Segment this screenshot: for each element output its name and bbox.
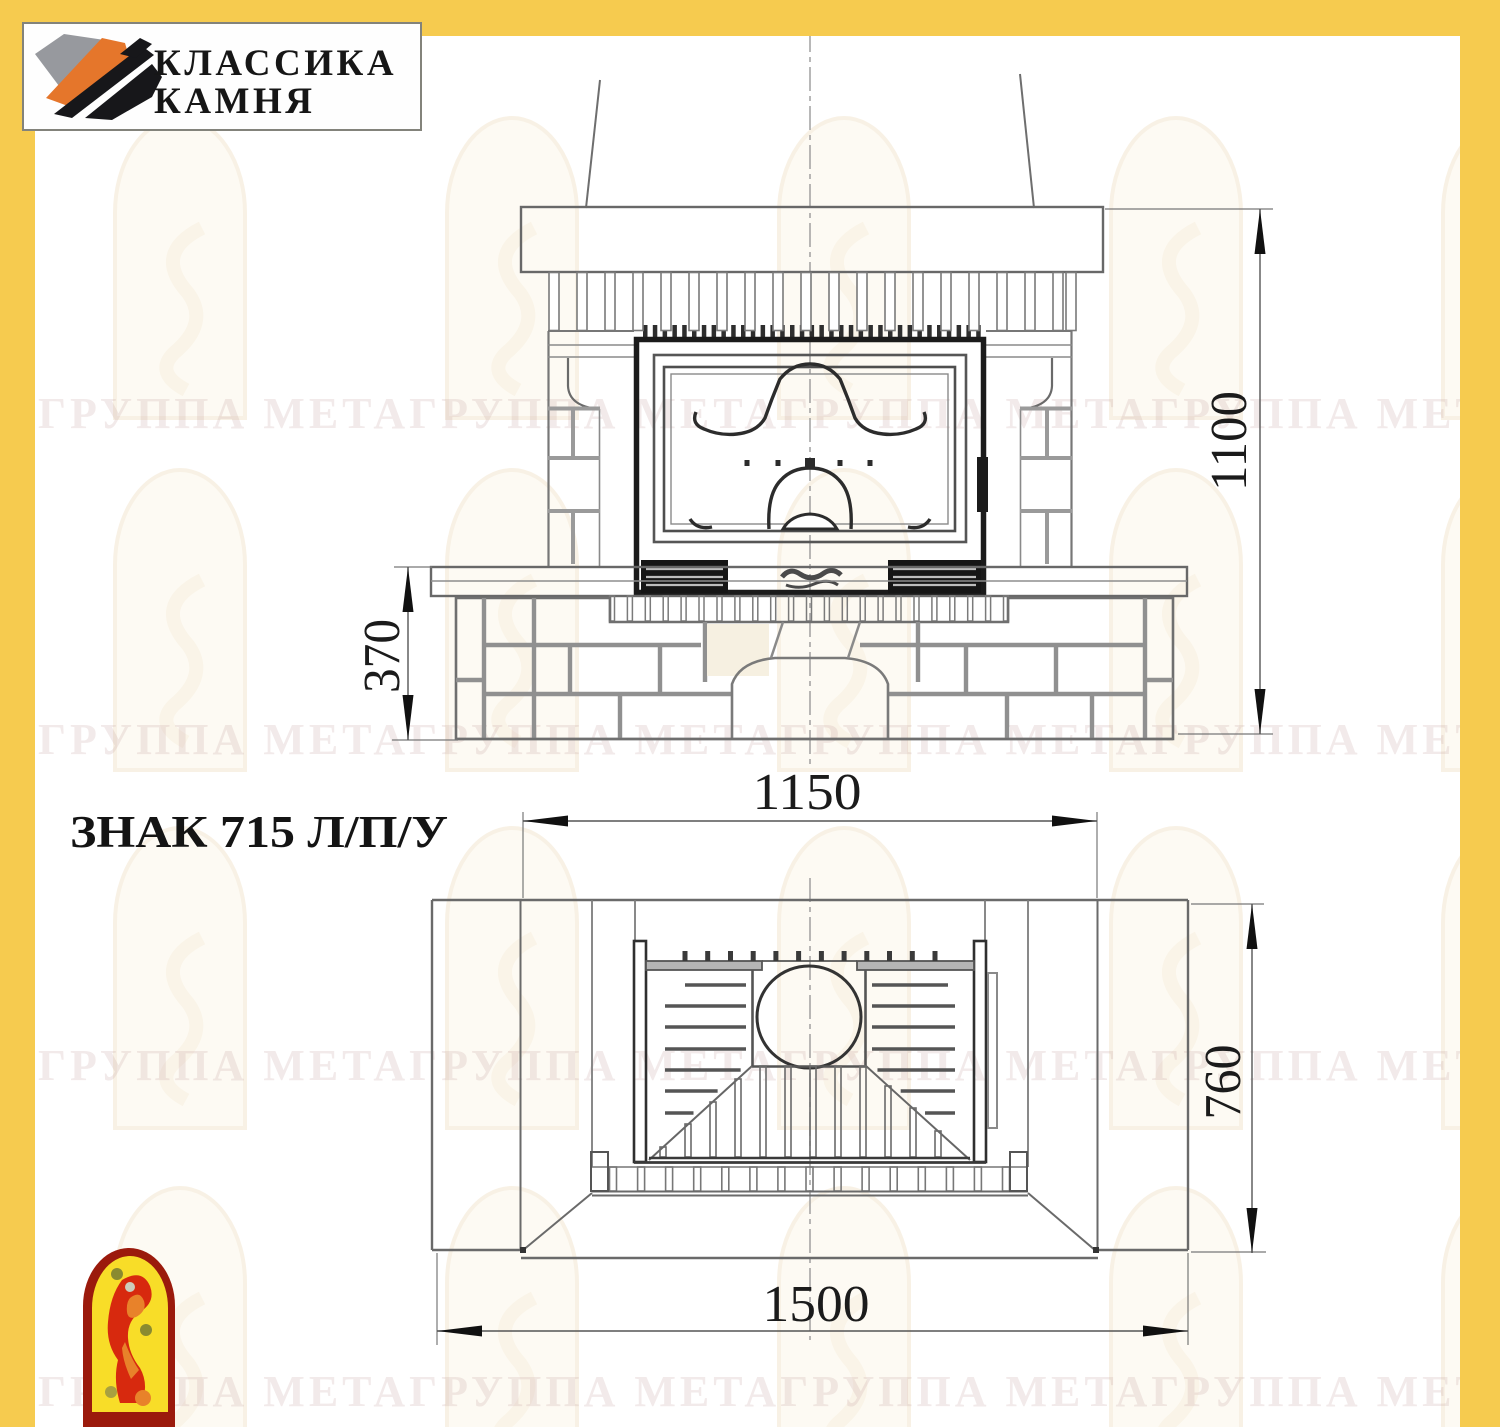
svg-text:КАМНЯ: КАМНЯ (154, 81, 315, 122)
svg-text:760: 760 (1195, 1045, 1252, 1120)
svg-text:1500: 1500 (763, 1276, 870, 1333)
svg-text:ЗНАК 715 Л/П/У: ЗНАК 715 Л/П/У (70, 807, 448, 857)
svg-text:КЛАССИКА: КЛАССИКА (154, 43, 397, 84)
svg-text:370: 370 (354, 619, 411, 693)
svg-text:1150: 1150 (753, 764, 862, 821)
svg-text:1100: 1100 (1201, 391, 1258, 491)
